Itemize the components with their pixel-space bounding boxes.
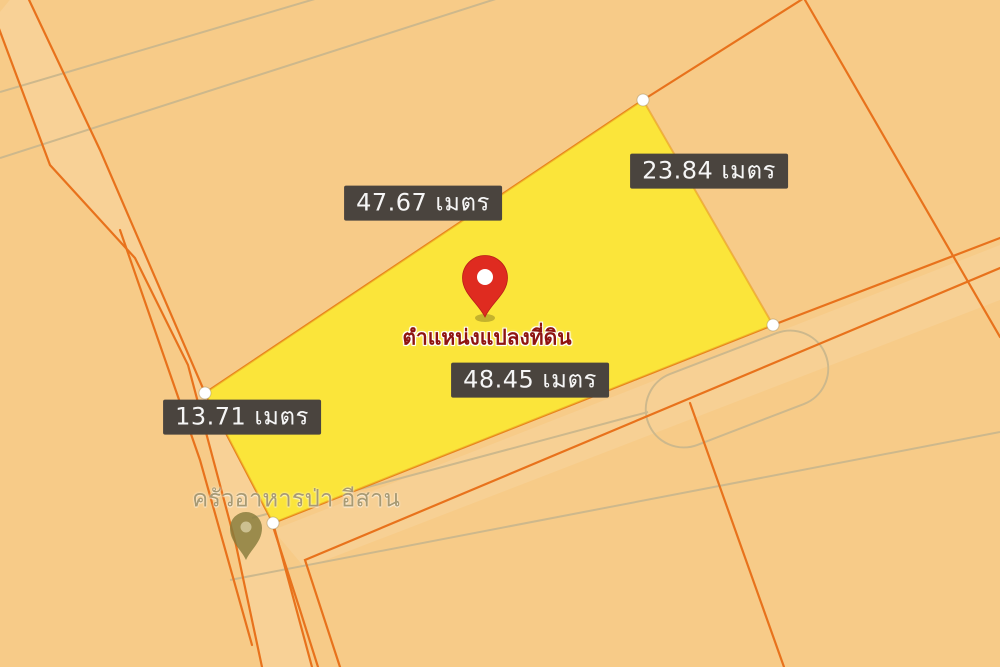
parcel-vertex-dot [637, 94, 649, 106]
parcel-vertex-dot [267, 517, 279, 529]
map-viewport[interactable]: ครัวอาหารป่า อีสาน 47.67 เมตร 23.84 เมตร… [0, 0, 1000, 667]
map-canvas[interactable] [0, 0, 1000, 667]
parcel-vertex-dot [199, 387, 211, 399]
parcel-vertex-dot [767, 319, 779, 331]
